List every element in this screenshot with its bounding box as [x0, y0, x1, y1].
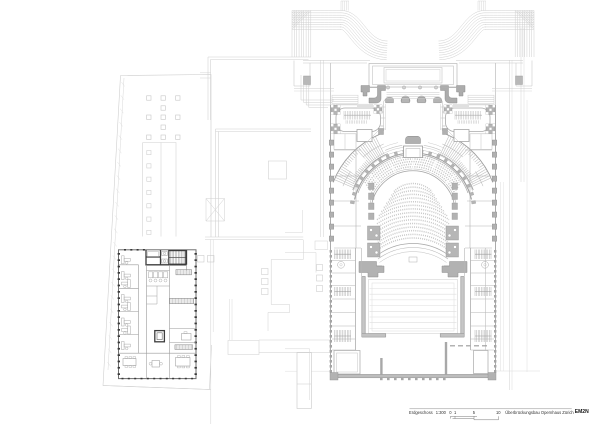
svg-text:EM2N: EM2N	[575, 409, 589, 415]
svg-text:10: 10	[496, 410, 501, 415]
svg-text:Überbrückungsbau Opernhaus Zür: Überbrückungsbau Opernhaus Zürich	[505, 410, 574, 415]
svg-text:1:300: 1:300	[436, 410, 447, 415]
svg-text:Erdgeschoss: Erdgeschoss	[409, 410, 433, 415]
